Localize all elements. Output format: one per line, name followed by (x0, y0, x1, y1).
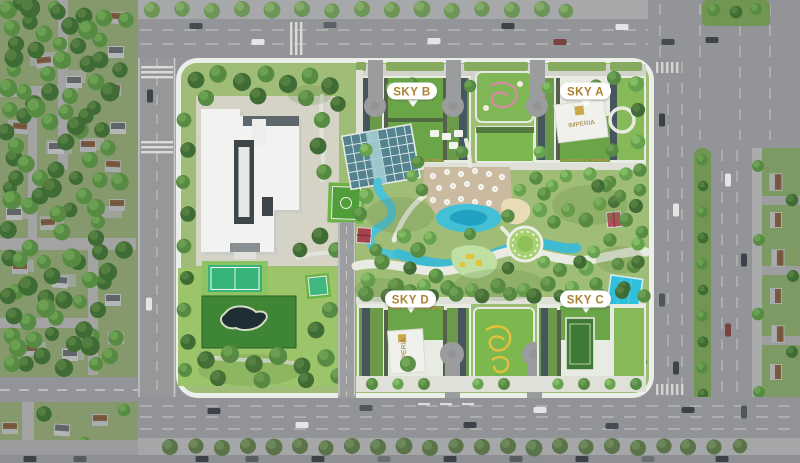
svg-text:SKY D: SKY D (392, 295, 429, 307)
svg-text:SKY B: SKY B (393, 87, 430, 99)
svg-text:SKY A: SKY A (567, 87, 604, 99)
svg-text:SKY C: SKY C (567, 295, 604, 307)
